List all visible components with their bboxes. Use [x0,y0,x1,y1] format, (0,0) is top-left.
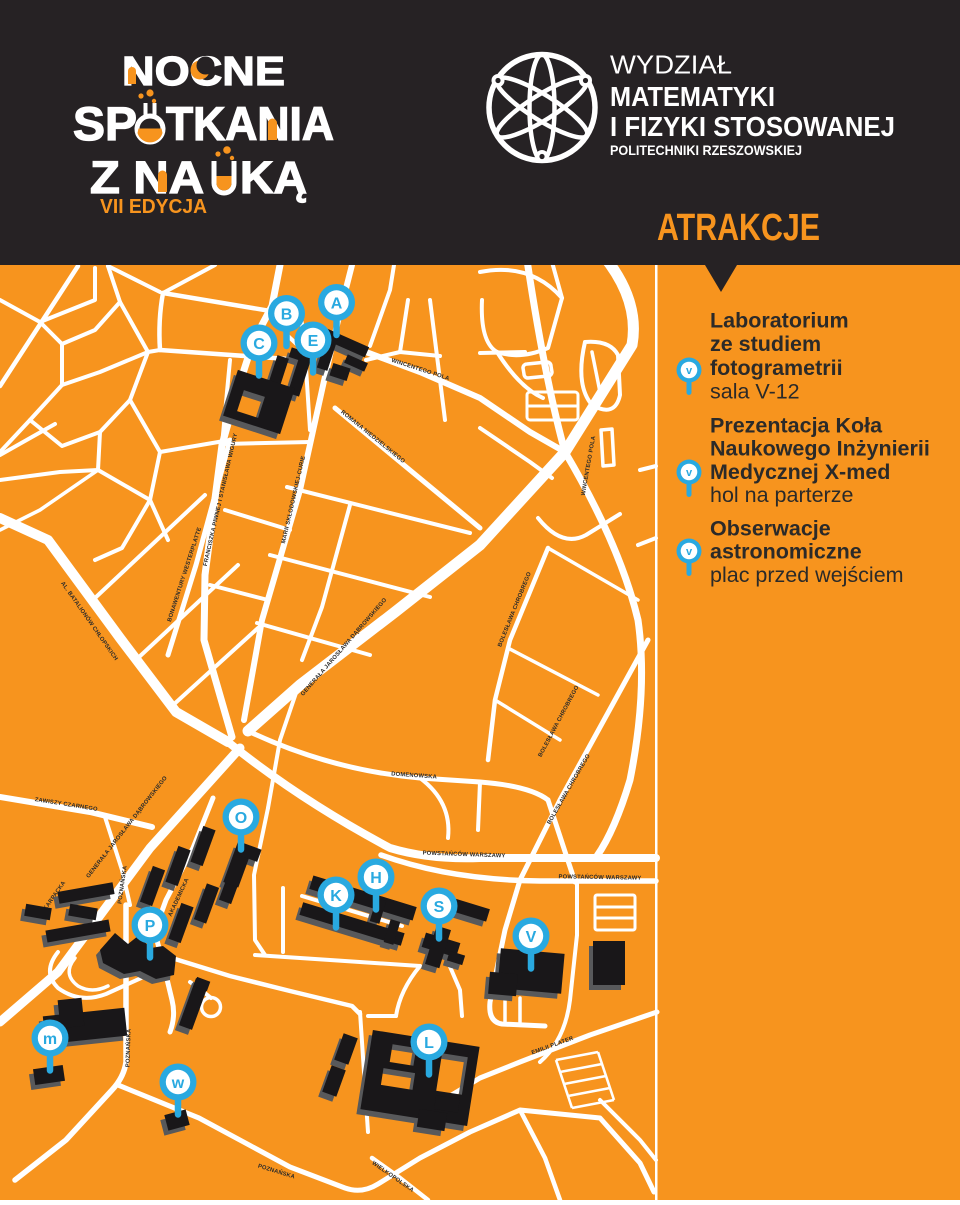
svg-text:SP: SP [73,97,137,150]
svg-text:KĄ: KĄ [240,152,307,203]
svg-text:Medycznej X-med: Medycznej X-med [710,460,890,484]
svg-text:sala V-12: sala V-12 [710,380,800,404]
svg-text:C: C [253,336,265,353]
svg-text:V: V [526,929,537,946]
svg-text:TKANIA: TKANIA [166,97,334,150]
svg-text:POLITECHNIKI RZESZOWSKIEJ: POLITECHNIKI RZESZOWSKIEJ [610,142,802,158]
svg-text:plac przed wejściem: plac przed wejściem [710,563,904,587]
svg-text:Laboratorium: Laboratorium [710,309,849,333]
svg-text:H: H [370,870,382,887]
svg-text:v: v [686,467,693,479]
svg-text:VII EDYCJA: VII EDYCJA [100,196,207,218]
svg-text:m: m [43,1031,57,1048]
svg-text:I FIZYKI STOSOWANEJ: I FIZYKI STOSOWANEJ [610,111,895,142]
svg-text:A: A [331,295,343,312]
svg-text:Prezentacja Koła: Prezentacja Koła [710,414,883,438]
svg-text:astronomiczne: astronomiczne [710,540,862,564]
svg-text:w: w [171,1075,185,1092]
svg-text:O: O [235,810,247,827]
svg-text:B: B [281,306,293,323]
svg-text:L: L [424,1035,434,1052]
svg-text:Obserwacje: Obserwacje [710,517,831,541]
svg-text:S: S [434,899,445,916]
svg-text:fotogrametrii: fotogrametrii [710,356,843,380]
svg-text:MATEMATYKI: MATEMATYKI [610,81,775,112]
svg-text:ATRAKCJE: ATRAKCJE [657,207,820,249]
svg-text:E: E [308,333,319,350]
svg-text:v: v [686,365,693,377]
svg-text:hol na parterze: hol na parterze [710,483,853,507]
svg-text:P: P [145,918,156,935]
svg-text:WYDZIAŁ: WYDZIAŁ [610,50,732,80]
svg-text:v: v [686,546,693,558]
svg-text:ze studiem: ze studiem [710,332,821,356]
svg-text:K: K [330,888,342,905]
svg-text:Naukowego Inżynierii: Naukowego Inżynierii [710,437,930,461]
